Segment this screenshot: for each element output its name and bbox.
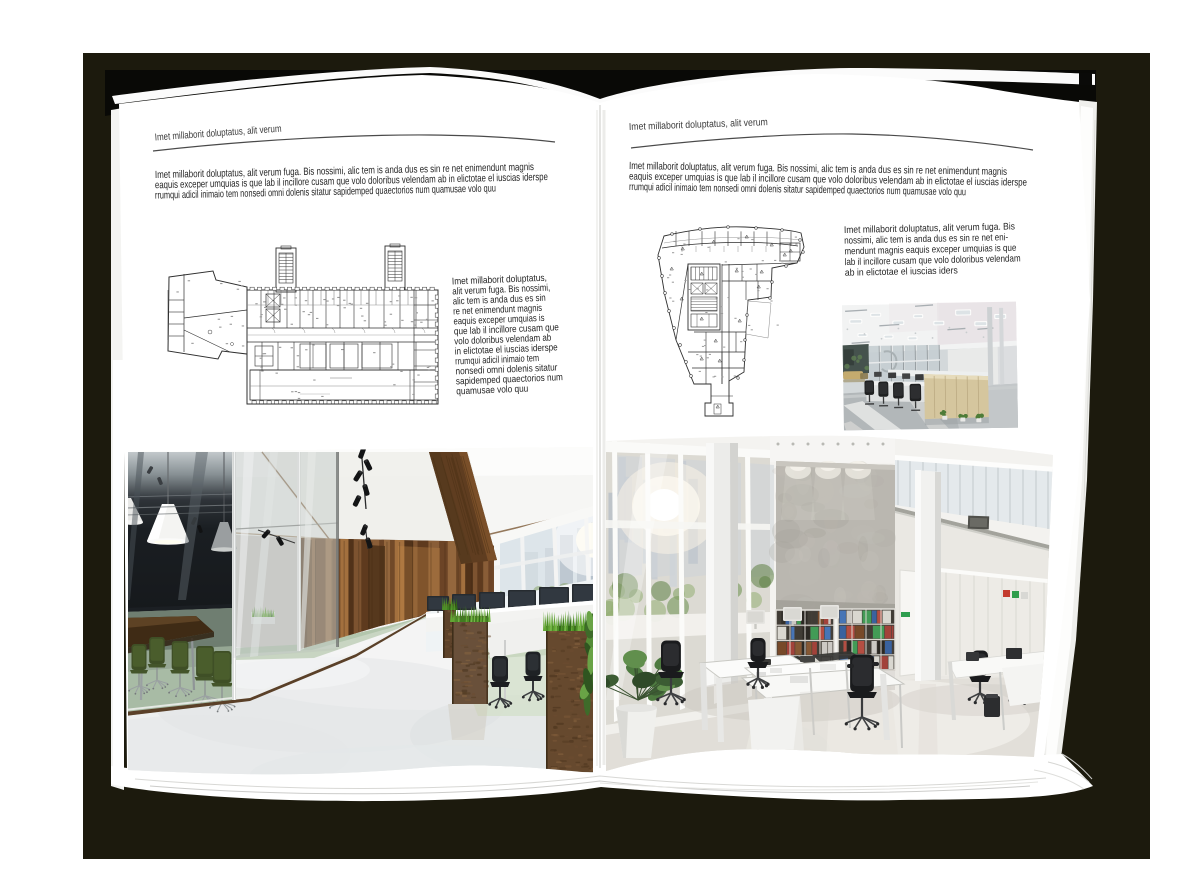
svg-text:ab in elictotae el iuscias ide: ab in elictotae el iuscias iders	[845, 265, 958, 278]
